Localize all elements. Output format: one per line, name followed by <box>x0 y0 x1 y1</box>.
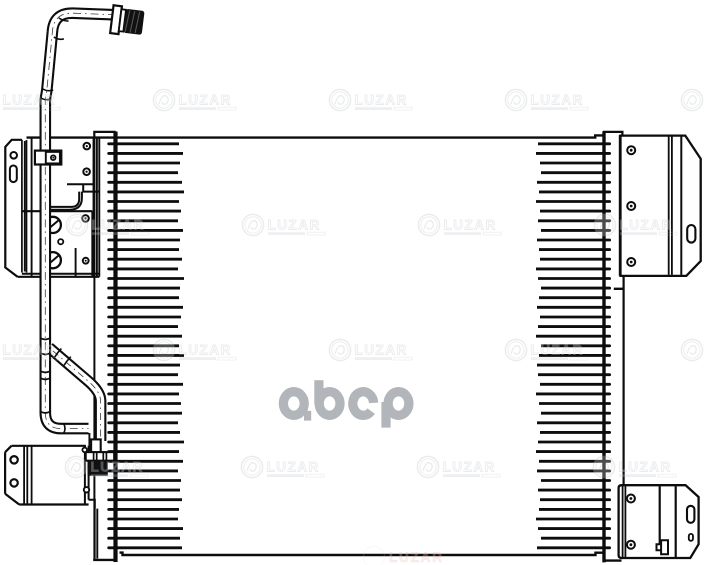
svg-text:LUZAR: LUZAR <box>3 93 56 108</box>
svg-text:LUZAR: LUZAR <box>355 343 408 358</box>
svg-text:LUZAR: LUZAR <box>267 460 320 475</box>
svg-text:LUZAR: LUZAR <box>389 550 444 565</box>
svg-text:LUZAR: LUZAR <box>619 460 672 475</box>
svg-text:LUZAR: LUZAR <box>443 460 496 475</box>
svg-text:LUZAR: LUZAR <box>355 93 408 108</box>
svg-text:LUZAR: LUZAR <box>620 218 673 233</box>
svg-text:LUZAR: LUZAR <box>268 218 321 233</box>
svg-text:LUZAR: LUZAR <box>3 343 56 358</box>
svg-text:LUZAR: LUZAR <box>531 93 584 108</box>
svg-text:LUZAR: LUZAR <box>92 218 145 233</box>
svg-text:LUZAR: LUZAR <box>91 460 144 475</box>
svg-text:LUZAR: LUZAR <box>179 93 232 108</box>
svg-text:LUZAR: LUZAR <box>179 343 232 358</box>
svg-text:LUZAR: LUZAR <box>531 343 584 358</box>
svg-text:LUZAR: LUZAR <box>444 218 497 233</box>
